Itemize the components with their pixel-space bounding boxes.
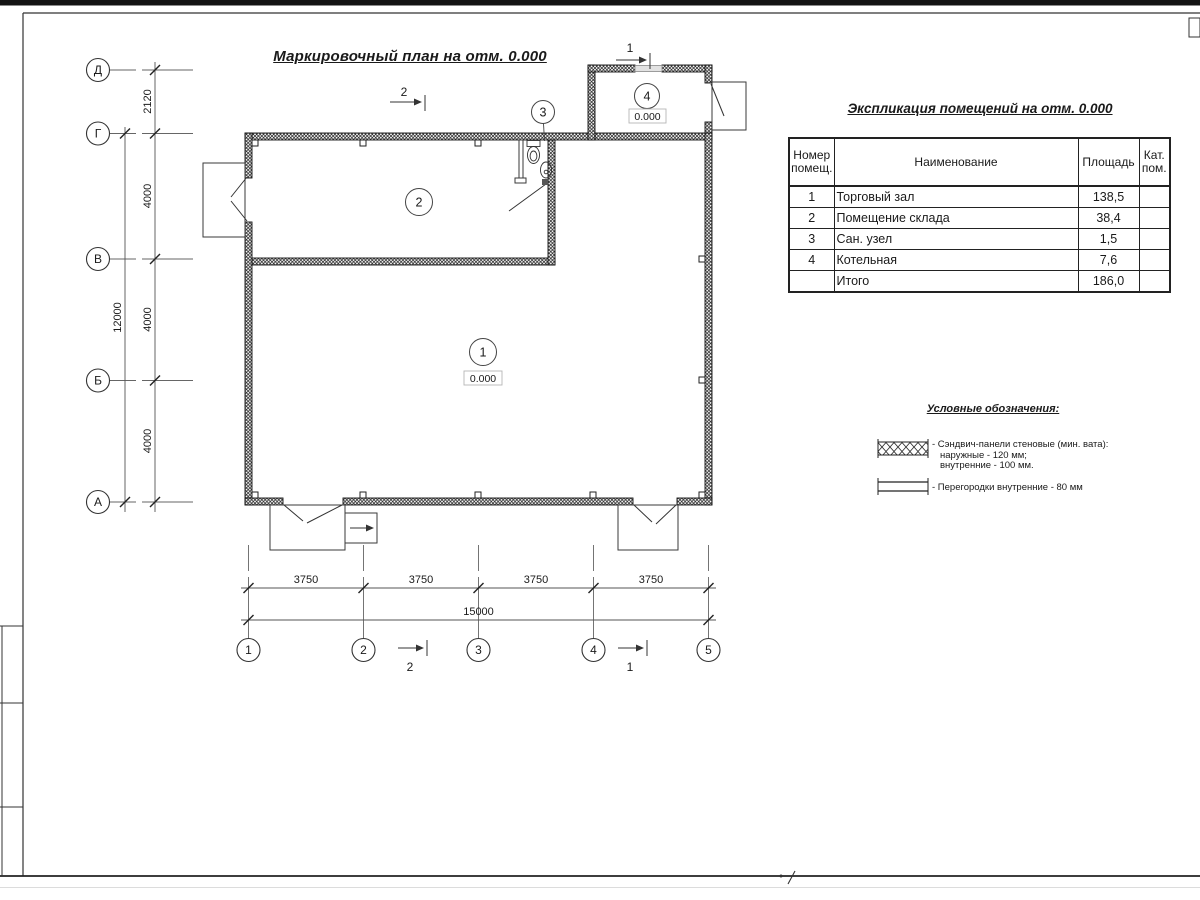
left-dimension-lines: 2120 4000 4000 4000 12000 — [112, 62, 160, 512]
room1-elevation: 0.000 — [470, 373, 496, 385]
left-dim-ticks — [120, 65, 160, 507]
room-cat — [1139, 186, 1170, 208]
top-edge-bar — [0, 0, 1200, 6]
porch-room4 — [712, 82, 746, 130]
table-row: 1 Торговый зал 138,5 — [789, 186, 1170, 208]
col-area: Площадь — [1078, 138, 1139, 186]
room-schedule-table: Номер помещ. Наименование Площадь Кат. п… — [788, 137, 1171, 293]
dim-15000: 15000 — [463, 606, 494, 618]
room-area: 1,5 — [1078, 229, 1139, 250]
col-name: Наименование — [834, 138, 1078, 186]
svg-text:2: 2 — [401, 85, 408, 99]
horizontal-axes: 1 2 3 4 5 3750 3750 3750 3750 15000 — [237, 545, 720, 662]
floor-plan-walls — [245, 65, 712, 505]
axis-stems — [249, 545, 709, 638]
wall-room4-top-a — [588, 65, 635, 72]
room3-number: 3 — [540, 106, 547, 120]
room-num: 2 — [789, 208, 834, 229]
room-num: 1 — [789, 186, 834, 208]
wall-main-top — [245, 133, 712, 140]
wall-room2-right — [548, 140, 555, 265]
schedule-header-row: Номер помещ. Наименование Площадь Кат. п… — [789, 138, 1170, 186]
vertical-axes: Д Г В Б А 2120 4000 4000 4000 12000 — [87, 59, 194, 514]
table-row: 4 Котельная 7,6 — [789, 250, 1170, 271]
dim-4000-b: 4000 — [142, 307, 154, 331]
room2-number: 2 — [416, 196, 423, 210]
axis-label-5: 5 — [705, 643, 712, 657]
dim-3750-b: 3750 — [409, 574, 433, 586]
room-area: 38,4 — [1078, 208, 1139, 229]
room3-partition-foot — [515, 178, 526, 183]
wall-main-left-lower — [245, 222, 252, 505]
room-cat — [1139, 208, 1170, 229]
room4-window — [635, 66, 662, 72]
room4-number: 4 — [644, 90, 651, 104]
room-cat — [1139, 229, 1170, 250]
toilet-icon — [527, 141, 540, 164]
axis-label-3: 3 — [475, 643, 482, 657]
fold-mark — [780, 871, 796, 884]
frame-left-stub-boxes — [0, 626, 23, 876]
axis-label-D: Д — [94, 63, 102, 77]
col-category: Кат. пом. — [1139, 138, 1170, 186]
total-cat — [1139, 271, 1170, 293]
room4-elevation: 0.000 — [634, 111, 660, 123]
svg-text:1: 1 — [627, 41, 634, 55]
room-area: 7,6 — [1078, 250, 1139, 271]
room-area: 138,5 — [1078, 186, 1139, 208]
wall-main-left-upper — [245, 133, 252, 178]
room-markers: 1 0.000 2 3 4 0.000 — [406, 84, 667, 386]
room-num: 3 — [789, 229, 834, 250]
room3-partition — [519, 140, 523, 178]
porches — [203, 82, 746, 550]
wall-main-right — [705, 133, 712, 505]
dim-12000: 12000 — [112, 302, 124, 333]
room1-number: 1 — [480, 346, 487, 360]
room-num: 4 — [789, 250, 834, 271]
legend-item-partitions: - Перегородки внутренние - 80 мм — [932, 482, 1182, 493]
wall-room4-top-b — [662, 65, 712, 72]
total-num — [789, 271, 834, 293]
room-name: Котельная — [834, 250, 1078, 271]
room-name: Помещение склада — [834, 208, 1078, 229]
porch-left — [203, 163, 245, 237]
legend-title: Условные обозначения: — [895, 403, 1091, 415]
legend-partition-symbol — [874, 477, 934, 497]
axis-label-G: Г — [95, 127, 102, 141]
dim-3750-a: 3750 — [294, 574, 318, 586]
axis-label-V: В — [94, 252, 102, 266]
svg-text:1: 1 — [627, 660, 634, 674]
schedule-title: Экспликация помещений на отм. 0.000 — [790, 101, 1170, 116]
wall-room2-bottom — [252, 258, 555, 265]
total-area: 186,0 — [1078, 271, 1139, 293]
legend-line: внутренние - 100 мм. — [932, 461, 1182, 472]
frame-corner-box — [1189, 18, 1200, 37]
legend-line: - Сэндвич-панели стеновые (мин. вата): — [932, 440, 1182, 451]
axis-label-A: А — [94, 495, 102, 509]
section-marker-2-bottom: 2 — [398, 640, 427, 674]
wall-main-bottom-a — [245, 498, 283, 505]
section-marker-2-top: 2 — [390, 85, 425, 111]
dim-2120: 2120 — [142, 89, 154, 113]
total-label: Итого — [834, 271, 1078, 293]
table-row-total: Итого 186,0 — [789, 271, 1170, 293]
axis-label-B: Б — [94, 374, 102, 388]
plan-title: Маркировочный план на отм. 0.000 — [248, 48, 572, 65]
room-name: Сан. узел — [834, 229, 1078, 250]
wall-room4-right-upper — [705, 65, 712, 83]
section-marker-1-bottom: 1 — [618, 640, 647, 674]
drawing-sheet: 1 0.000 2 3 4 0.000 Д Г В Б А — [0, 0, 1200, 900]
dim-3750-d: 3750 — [639, 574, 663, 586]
col-number: Номер помещ. — [789, 138, 834, 186]
wall-main-bottom-b — [343, 498, 633, 505]
door-room3 — [509, 179, 548, 211]
porch-bottom-left — [270, 505, 345, 550]
table-row: 2 Помещение склада 38,4 — [789, 208, 1170, 229]
wall-room4-right-lower — [705, 122, 712, 133]
dim-4000-c: 4000 — [142, 429, 154, 453]
table-row: 3 Сан. узел 1,5 — [789, 229, 1170, 250]
room-cat — [1139, 250, 1170, 271]
room-name: Торговый зал — [834, 186, 1078, 208]
axis-label-1: 1 — [245, 643, 252, 657]
dim-3750-c: 3750 — [524, 574, 548, 586]
svg-text:2: 2 — [407, 660, 414, 674]
axis-label-2: 2 — [360, 643, 367, 657]
axis-label-4: 4 — [590, 643, 597, 657]
legend-sandwich-panel-symbol — [874, 438, 934, 460]
column-ticks — [252, 140, 705, 498]
wall-main-bottom-c — [677, 498, 712, 505]
dim-4000-a: 4000 — [142, 184, 154, 208]
wall-room4-left — [588, 65, 595, 140]
doors — [231, 84, 724, 524]
legend-item-sandwich-panels: - Сэндвич-панели стеновые (мин. вата): н… — [932, 440, 1182, 472]
